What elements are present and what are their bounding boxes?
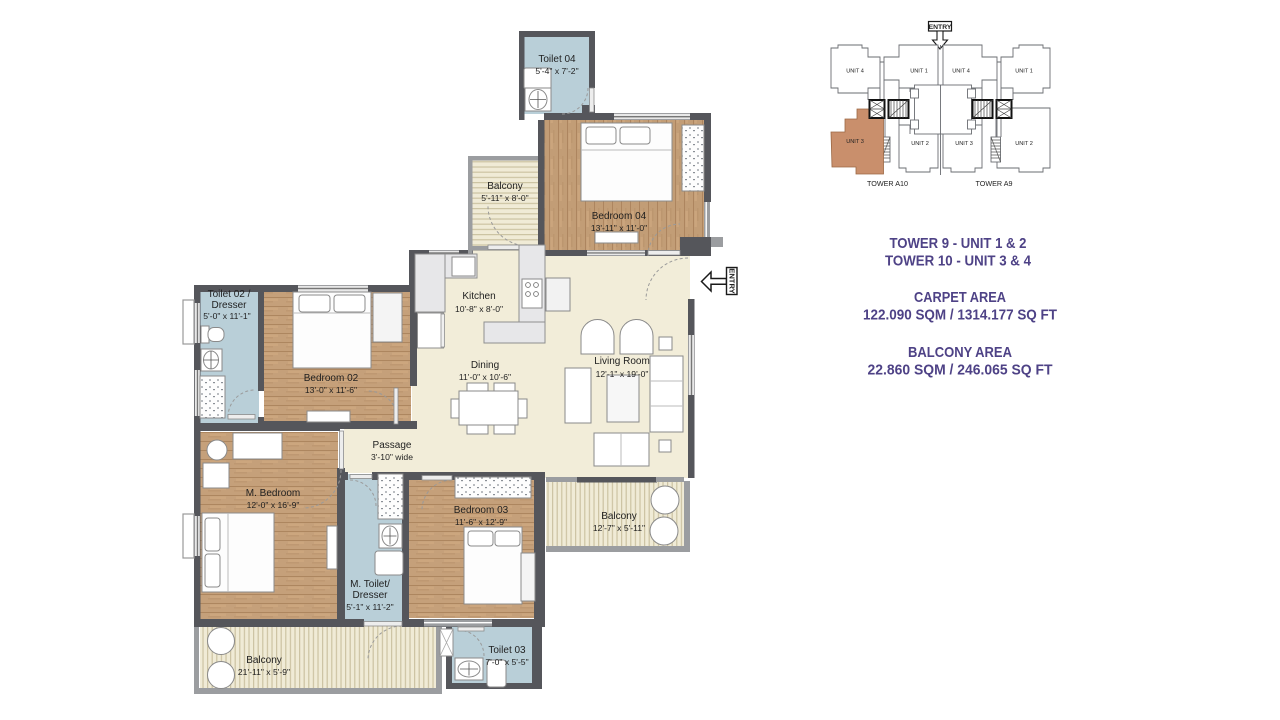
svg-text:Bedroom 03: Bedroom 03 [454, 505, 509, 516]
svg-text:UNIT 3: UNIT 3 [955, 141, 973, 147]
svg-text:UNIT 3: UNIT 3 [846, 139, 864, 145]
svg-text:11'-0" x 10'-6": 11'-0" x 10'-6" [459, 372, 511, 382]
svg-text:Dresser: Dresser [352, 590, 388, 601]
svg-text:Toilet 04: Toilet 04 [538, 54, 576, 65]
svg-text:Balcony: Balcony [246, 655, 282, 666]
svg-text:12'-7" x 5'-11": 12'-7" x 5'-11" [593, 523, 645, 533]
svg-text:21'-11" x 5'-9": 21'-11" x 5'-9" [238, 667, 290, 677]
svg-text:ENTRY: ENTRY [929, 24, 952, 31]
svg-text:TOWER 9 - UNIT 1 & 2: TOWER 9 - UNIT 1 & 2 [890, 235, 1027, 252]
svg-text:7'-0" x 5'-5": 7'-0" x 5'-5" [485, 657, 528, 667]
svg-text:UNIT 1: UNIT 1 [910, 69, 928, 75]
svg-text:BALCONY AREA: BALCONY AREA [908, 344, 1012, 361]
svg-text:12'-1" x 19'-0": 12'-1" x 19'-0" [596, 369, 649, 379]
svg-text:13'-0" x 11'-6": 13'-0" x 11'-6" [305, 385, 357, 395]
svg-text:ENTRY: ENTRY [727, 268, 736, 293]
svg-text:Living Room: Living Room [594, 356, 650, 367]
svg-text:UNIT 1: UNIT 1 [1015, 69, 1033, 75]
svg-text:Passage: Passage [373, 440, 412, 451]
svg-text:3'-10" wide: 3'-10" wide [371, 452, 413, 462]
svg-text:UNIT 2: UNIT 2 [1015, 141, 1033, 147]
svg-text:UNIT 2: UNIT 2 [911, 141, 929, 147]
svg-text:Dresser: Dresser [211, 300, 247, 311]
svg-text:Kitchen: Kitchen [462, 291, 495, 302]
svg-text:UNIT 4: UNIT 4 [952, 69, 970, 75]
svg-text:122.090 SQM / 1314.177 SQ FT: 122.090 SQM / 1314.177 SQ FT [863, 307, 1057, 324]
svg-text:5'-4" x 7'-2": 5'-4" x 7'-2" [535, 66, 578, 76]
svg-text:10'-8" x 8'-0": 10'-8" x 8'-0" [455, 304, 503, 314]
svg-text:5'-1" x 11'-2": 5'-1" x 11'-2" [346, 602, 393, 612]
svg-text:TOWER A9: TOWER A9 [975, 179, 1012, 188]
svg-text:5'-0" x 11'-1": 5'-0" x 11'-1" [203, 311, 250, 321]
svg-text:UNIT 4: UNIT 4 [846, 69, 864, 75]
svg-text:CARPET AREA: CARPET AREA [914, 289, 1006, 306]
svg-text:12'-0" x 16'-9": 12'-0" x 16'-9" [247, 500, 300, 510]
svg-text:Toilet 03: Toilet 03 [488, 645, 526, 656]
svg-text:TOWER A10: TOWER A10 [867, 179, 908, 188]
svg-text:Toilet 02 /: Toilet 02 / [208, 289, 251, 300]
svg-text:Dining: Dining [471, 360, 499, 371]
svg-text:Bedroom 02: Bedroom 02 [304, 373, 359, 384]
svg-text:TOWER 10 - UNIT 3 & 4: TOWER 10 - UNIT 3 & 4 [885, 253, 1032, 270]
svg-text:13'-11" x 11'-0": 13'-11" x 11'-0" [591, 223, 647, 233]
svg-text:11'-6" x 12'-9": 11'-6" x 12'-9" [455, 517, 507, 527]
svg-text:Balcony: Balcony [601, 511, 637, 522]
svg-text:22.860 SQM / 246.065 SQ FT: 22.860 SQM / 246.065 SQ FT [868, 362, 1053, 379]
svg-text:Bedroom 04: Bedroom 04 [592, 211, 647, 222]
svg-text:5'-11" x 8'-0": 5'-11" x 8'-0" [481, 193, 528, 203]
svg-text:M. Toilet/: M. Toilet/ [350, 579, 390, 590]
svg-text:M. Bedroom: M. Bedroom [246, 488, 300, 499]
svg-text:Balcony: Balcony [487, 181, 523, 192]
